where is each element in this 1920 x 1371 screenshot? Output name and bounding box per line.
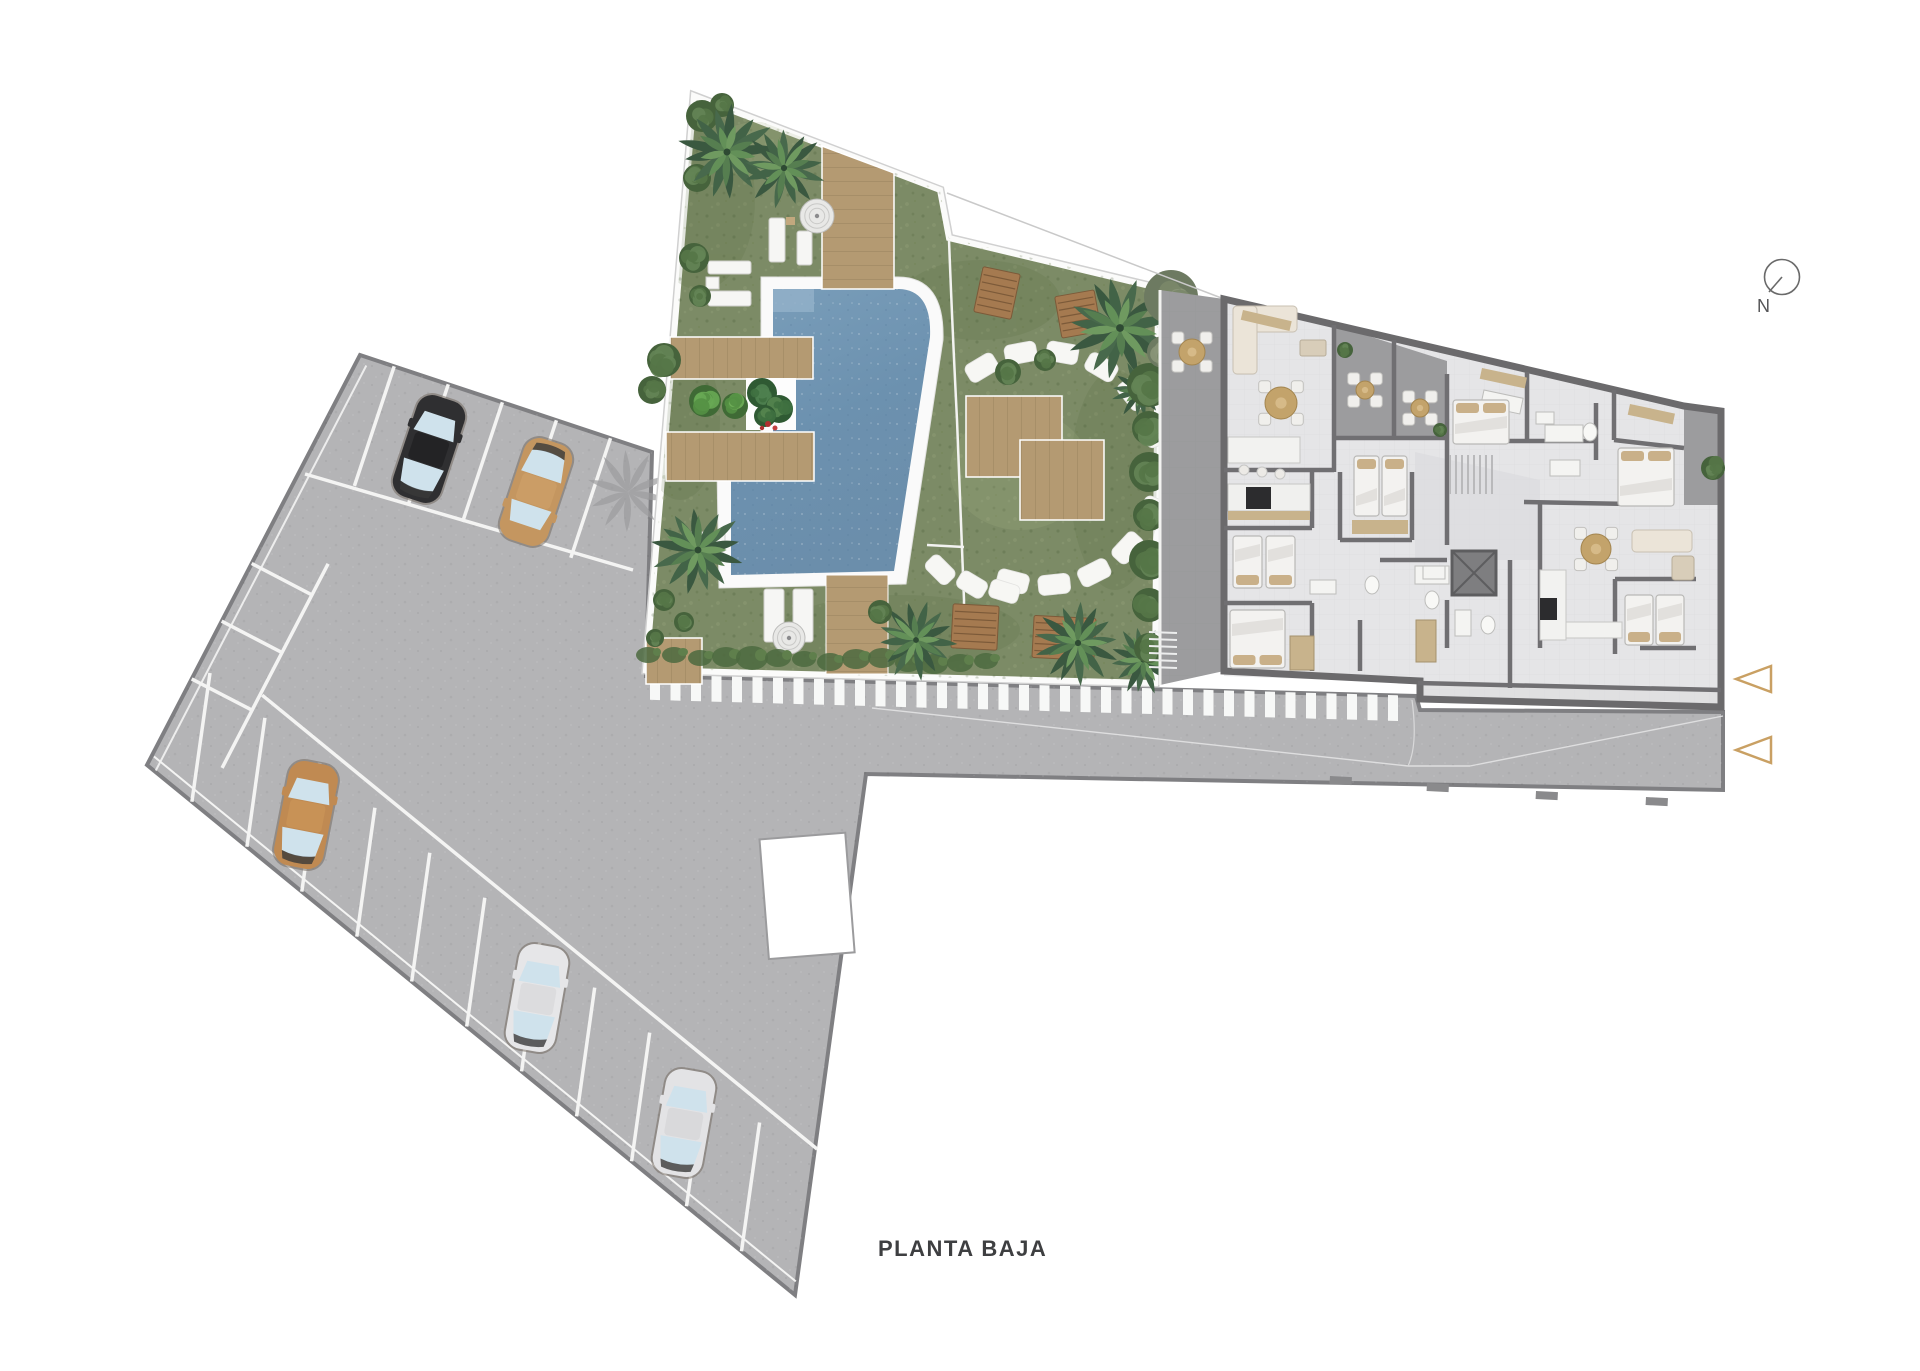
svg-text:PLANTA BAJA: PLANTA BAJA — [878, 1236, 1047, 1261]
svg-text:N: N — [1757, 296, 1770, 316]
